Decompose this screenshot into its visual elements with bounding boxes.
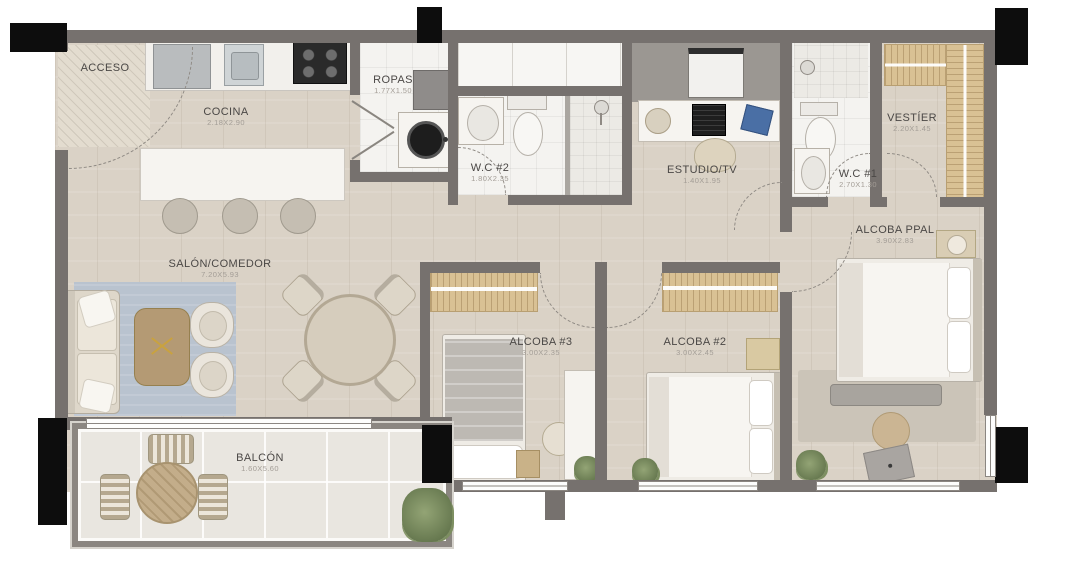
column [38, 418, 67, 525]
room-dims: 2.70X1.30 [818, 181, 898, 190]
balcony-table [136, 462, 198, 524]
room-name: ALCOBA #2 [644, 336, 746, 349]
room-name: ACCESO [62, 62, 148, 75]
kitchen-island [140, 148, 345, 201]
balcony-chair [148, 434, 194, 464]
kitchen-sink [224, 44, 264, 86]
room-dims: 7.20X5.93 [158, 271, 282, 280]
sofa [60, 290, 120, 414]
wall-ropas-bottom [350, 172, 458, 182]
room-dims: 1.77X1.50 [352, 87, 434, 96]
pillow [749, 380, 773, 426]
room-name: ROPAS [352, 74, 434, 87]
room-name: ALCOBA #3 [490, 336, 592, 349]
wall-alcoba3-left [420, 262, 430, 425]
window-alcoba2 [638, 481, 758, 491]
balcony-plant [402, 488, 452, 542]
armchair-seat [199, 311, 227, 341]
wall-top [55, 30, 997, 43]
column [995, 8, 1028, 65]
washer [398, 112, 452, 168]
room-dims: 3.00X2.35 [490, 349, 592, 358]
wall-left [55, 150, 68, 417]
nightstand [746, 338, 780, 370]
pillow [947, 321, 971, 373]
wall-wc2-top [448, 86, 632, 96]
room-label-balcon: BALCÓN 1.60X5.60 [214, 452, 306, 473]
laptop-dot [888, 463, 893, 468]
room-dims: 3.00X2.45 [644, 349, 746, 358]
balcony-chair [100, 474, 130, 520]
wc2-basin [467, 105, 499, 141]
washer-door [407, 121, 445, 159]
room-label-alcoba2: ALCOBA #2 3.00X2.45 [644, 336, 746, 357]
linen-closet [458, 43, 622, 87]
bed-principal [836, 258, 982, 382]
headboard [973, 259, 982, 381]
room-name: SALÓN/COMEDOR [158, 258, 282, 271]
column [422, 425, 452, 483]
shower-head [800, 60, 815, 75]
sliding-door-balcony [86, 418, 372, 429]
window-alcoba-ppal [816, 481, 960, 491]
coffee-table [134, 308, 190, 386]
room-dims: 3.90X2.83 [844, 237, 946, 246]
window-alcoba3 [462, 481, 568, 491]
room-dims: 2.20X1.45 [872, 125, 952, 134]
column [417, 7, 442, 43]
room-label-salon: SALÓN/COMEDOR 7.20X5.93 [158, 258, 282, 279]
throw-pillow [78, 378, 116, 414]
bed-bench [830, 384, 942, 406]
room-name: COCINA [176, 106, 276, 119]
side-table [516, 450, 540, 478]
wall-bedroom-divider [595, 262, 607, 480]
room-dims: 1.60X5.60 [214, 465, 306, 474]
pillow [947, 267, 971, 319]
wall-stub-bottom [545, 492, 565, 520]
room-label-vestier: VESTÍER 2.20X1.45 [872, 112, 952, 133]
room-label-wc2: W.C #2 1.80X2.35 [450, 162, 530, 183]
floor-plan: ACCESO COCINA 2.18X2.90 ROPAS 1.77X1.50 … [0, 0, 1072, 577]
table-lamp [947, 235, 967, 255]
island-stool [280, 198, 316, 234]
island-stool [162, 198, 198, 234]
room-name: ESTUDIO/TV [642, 164, 762, 177]
armchair-seat [199, 361, 227, 391]
room-name: VESTÍER [872, 112, 952, 125]
plant [796, 450, 826, 480]
window-right-wall [985, 415, 996, 477]
pillow [749, 428, 773, 474]
sink-basin [231, 52, 259, 80]
room-label-cocina: COCINA 2.18X2.90 [176, 106, 276, 127]
wall-wc1-bottom [792, 197, 828, 207]
room-dims: 1.40X1.95 [642, 177, 762, 186]
armchair [190, 302, 234, 348]
estudio-stool [645, 108, 671, 134]
wc2-vanity [458, 97, 504, 145]
shower-head-arm [600, 113, 602, 125]
dining-table [304, 294, 396, 386]
room-dims: 1.80X2.35 [450, 175, 530, 184]
tv-console [688, 48, 744, 98]
wall-wc2-bottom-left [448, 195, 458, 205]
room-label-wc1: W.C #1 2.70X1.30 [818, 168, 898, 189]
wall-right [984, 43, 997, 415]
wall-vestier-bottom-left [870, 197, 887, 207]
wall-alcoba2-top [662, 262, 780, 273]
room-label-ropas: ROPAS 1.77X1.50 [352, 74, 434, 95]
duvet-fold [839, 263, 863, 377]
room-name: W.C #2 [450, 162, 530, 175]
column [995, 427, 1028, 483]
room-label-alcoba-ppal: ALCOBA PPAL 3.90X2.83 [844, 224, 946, 245]
wc2-toilet-tank [507, 95, 547, 110]
armchair [190, 352, 234, 398]
wall-vestier-bottom-right [940, 197, 997, 207]
column [10, 23, 67, 52]
wall-alcoba3-top [420, 262, 540, 273]
pillow [447, 445, 523, 479]
bed-alcoba2 [646, 372, 782, 482]
wall-center-lower [780, 292, 792, 480]
wall-estudio-left [622, 43, 632, 205]
wc2-toilet-bowl [513, 112, 543, 156]
room-dims: 2.18X2.90 [176, 119, 276, 128]
room-name: ALCOBA PPAL [844, 224, 946, 237]
room-name: W.C #1 [818, 168, 898, 181]
room-label-acceso: ACCESO [62, 62, 148, 75]
island-stool [222, 198, 258, 234]
balcony-chair [198, 474, 228, 520]
cooktop [293, 42, 347, 84]
laptop [692, 104, 726, 136]
room-name: BALCÓN [214, 452, 306, 465]
wall-wc2-bottom-right [508, 195, 632, 205]
room-label-estudio: ESTUDIO/TV 1.40X1.95 [642, 164, 762, 185]
room-label-alcoba3: ALCOBA #3 3.00X2.35 [490, 336, 592, 357]
wc1-toilet-tank [800, 102, 838, 116]
